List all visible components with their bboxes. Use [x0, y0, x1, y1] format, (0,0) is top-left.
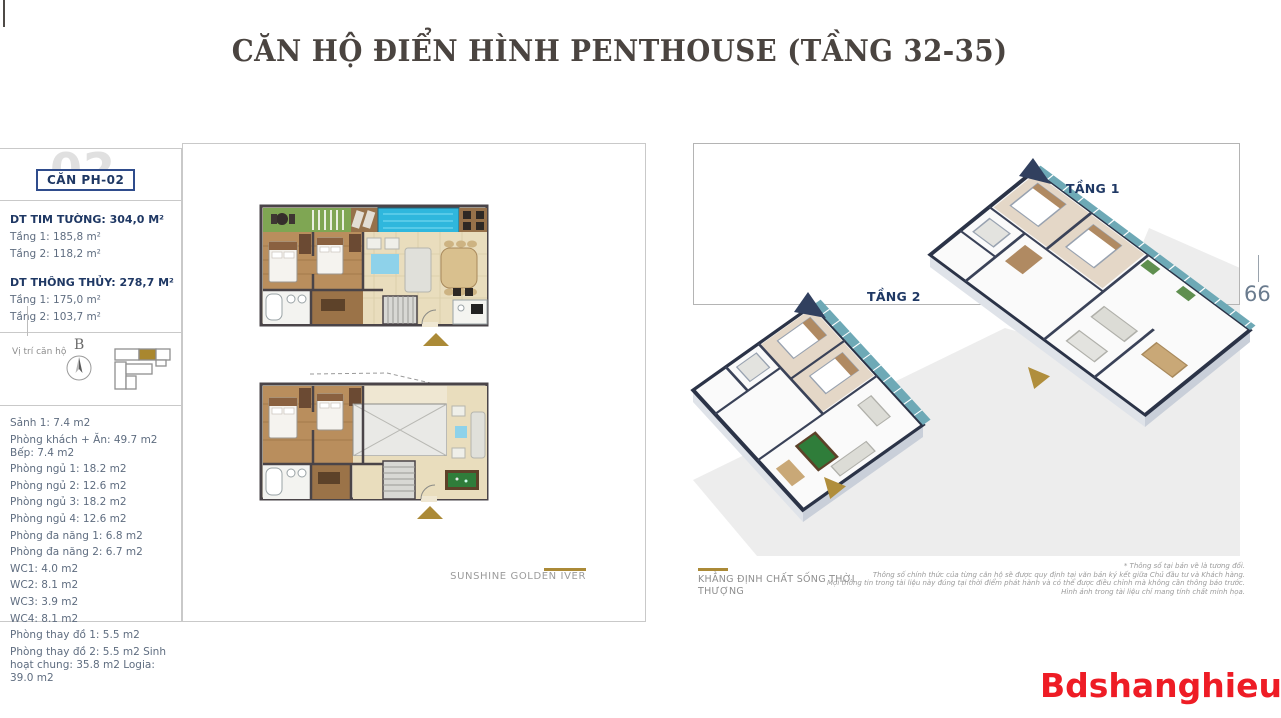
watermark: Bdshanghieu.vn: [1040, 666, 1260, 705]
disclaimer-line: Thông số chính thức của từng căn hộ sẽ đ…: [780, 571, 1245, 580]
page-title-text: CĂN HỘ ĐIỂN HÌNH PENTHOUSE (TẦNG 32-35): [232, 34, 1008, 69]
gross-area-heading: DT TIM TƯỜNG: 304,0 M²: [10, 213, 181, 226]
net-area-heading: DT THÔNG THỦY: 278,7 M²: [10, 276, 181, 289]
floor-plan-level1: [255, 196, 492, 332]
area-divider: [27, 306, 28, 336]
net-area-floor2: Tầng 2: 103,7 m²: [10, 311, 181, 323]
page-number: 66: [1244, 282, 1271, 306]
gross-area-floor1: Tầng 1: 185,8 m²: [10, 231, 181, 243]
compass-icon: [66, 355, 92, 381]
room-item: Phòng ngủ 4: 12.6 m2: [10, 513, 173, 526]
gross-area-floor2: Tầng 2: 118,2 m²: [10, 248, 181, 260]
room-item: Phòng ngủ 3: 18.2 m2: [10, 496, 173, 509]
entry-marker-level2: [417, 506, 443, 519]
floor1-label: TẦNG 1: [1066, 181, 1120, 196]
area-section: DT TIM TƯỜNG: 304,0 M² Tầng 1: 185,8 m² …: [0, 201, 181, 333]
unit-badge: CĂN PH-02: [36, 169, 135, 191]
floorplan-panel: SUNSHINE GOLDEN IVER: [182, 143, 646, 622]
room-item: WC4: 8.1 m2: [10, 613, 173, 626]
net-area-floor1: Tầng 1: 175,0 m²: [10, 294, 181, 306]
room-item: WC1: 4.0 m2: [10, 563, 173, 576]
building-locator-icon: [113, 345, 177, 393]
brand-label: SUNSHINE GOLDEN IVER: [413, 571, 586, 582]
room-item: Phòng ngủ 2: 12.6 m2: [10, 480, 173, 493]
brochure-page: { "page": { "title": "CĂN HỘ ĐIỂN HÌNH P…: [0, 0, 1281, 718]
disclaimer-line: Mọi thông tin trong tài liệu này đúng tạ…: [780, 579, 1245, 588]
room-item: WC3: 3.9 m2: [10, 596, 173, 609]
room-item: Phòng đa năng 1: 6.8 m2: [10, 530, 173, 543]
entry-marker-level1: [423, 333, 449, 346]
floor-plan-level2: [255, 366, 492, 506]
room-item: Sảnh 1: 7.4 m2: [10, 417, 173, 430]
compass-north-letter: B: [74, 337, 84, 353]
floor2-3d-view: [688, 292, 938, 557]
floor1-3d-view: [915, 158, 1260, 438]
unit-header-section: 02 CĂN PH-02: [0, 149, 181, 201]
sidebar: 02 CĂN PH-02 DT TIM TƯỜNG: 304,0 M² Tầng…: [0, 148, 182, 622]
page-title: CĂN HỘ ĐIỂN HÌNH PENTHOUSE (TẦNG 32-35): [0, 34, 1240, 69]
location-section: Vị trí căn hộ B: [0, 333, 181, 406]
tagline-accent-line: [698, 568, 728, 571]
disclaimer-line: * Thông số tại bản vẽ là tương đối.: [780, 562, 1245, 571]
corner-tick: [3, 0, 5, 27]
room-list: Sảnh 1: 7.4 m2 Phòng khách + Ăn: 49.7 m2…: [0, 406, 181, 623]
disclaimer-line: Hình ảnh trong tài liệu chỉ mang tính ch…: [780, 588, 1245, 597]
floor2-label: TẦNG 2: [867, 289, 921, 304]
page-number-rule: [1258, 255, 1259, 282]
room-item: Phòng khách + Ăn: 49.7 m2 Bếp: 7.4 m2: [10, 434, 173, 460]
disclaimer: * Thông số tại bản vẽ là tương đối. Thôn…: [780, 562, 1245, 596]
room-item: WC2: 8.1 m2: [10, 579, 173, 592]
room-item: Phòng thay đồ 1: 5.5 m2: [10, 629, 173, 642]
room-item: Phòng ngủ 1: 18.2 m2: [10, 463, 173, 476]
location-label: Vị trí căn hộ: [12, 347, 66, 357]
room-item: Phòng thay đồ 2: 5.5 m2 Sinh hoạt chung:…: [10, 646, 173, 685]
room-item: Phòng đa năng 2: 6.7 m2: [10, 546, 173, 559]
